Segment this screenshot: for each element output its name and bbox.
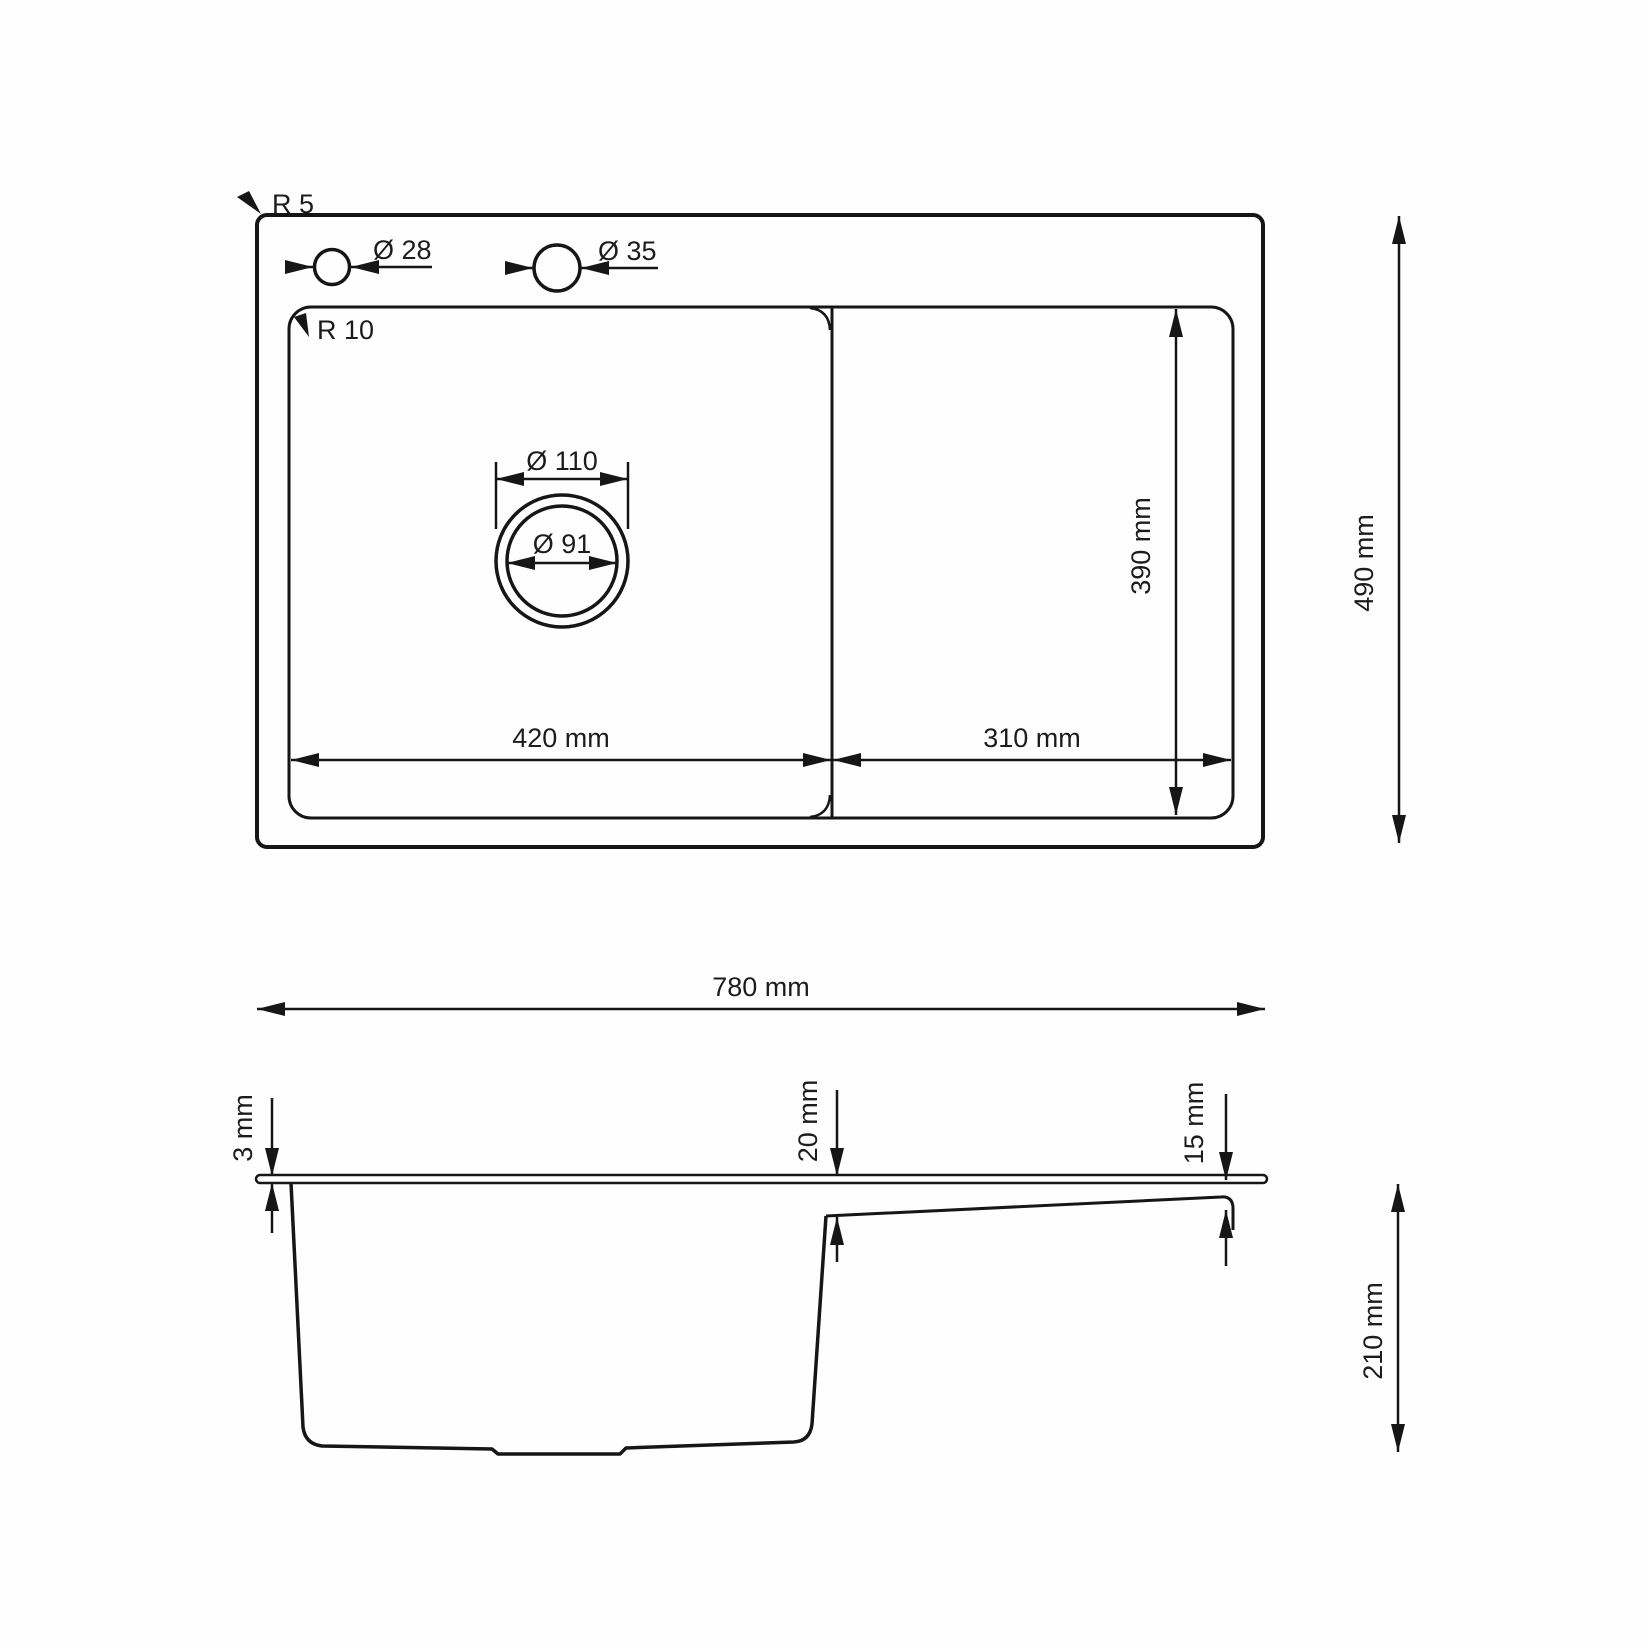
drain-inner-circle xyxy=(507,506,617,616)
faucet-hole-28 xyxy=(315,250,350,285)
dim-label-bowl-edge-drop: 20 mm xyxy=(793,1080,823,1163)
dim-label-hole-35: Ø 35 xyxy=(598,236,657,266)
leader-arrow-r5 xyxy=(237,191,261,214)
bowl-section-outline xyxy=(291,1183,826,1454)
dim-label-bowl-width: 420 mm xyxy=(512,723,610,753)
technical-drawing-canvas: Ø 28 Ø 35 R 5 R 10 Ø 110 xyxy=(0,0,1646,1646)
leader-arrow-r10 xyxy=(294,313,309,337)
dim-rim-thickness: 3 mm xyxy=(228,1094,272,1233)
dim-drain-outer: Ø 110 xyxy=(496,446,628,529)
dim-label-drainboard-width: 310 mm xyxy=(983,723,1081,753)
dim-bowl-edge-drop: 20 mm xyxy=(793,1080,837,1262)
dim-bowl-depth: 390 mm xyxy=(1126,309,1176,815)
faucet-hole-35 xyxy=(534,245,580,291)
top-view: Ø 28 Ø 35 R 5 R 10 Ø 110 xyxy=(237,189,1399,847)
sink-technical-drawing: Ø 28 Ø 35 R 5 R 10 Ø 110 xyxy=(0,0,1646,1646)
dim-label-overall-width: 780 mm xyxy=(712,972,810,1002)
dim-bowl-width: 420 mm xyxy=(291,723,831,760)
radius-inner-label: R 10 xyxy=(317,315,374,345)
dim-label-drainboard-edge-drop: 15 mm xyxy=(1179,1082,1209,1165)
dim-faucet-hole-35: Ø 35 xyxy=(506,236,658,268)
dim-label-rim-thickness: 3 mm xyxy=(228,1094,258,1162)
dim-overall-depth: 490 mm xyxy=(1349,216,1399,843)
radius-outer-callout: R 5 xyxy=(237,189,314,219)
radius-outer-label: R 5 xyxy=(272,189,314,219)
dim-drainboard-width: 310 mm xyxy=(833,723,1231,760)
dim-drain-inner: Ø 91 xyxy=(507,529,617,563)
outer-outline xyxy=(257,215,1263,847)
radius-inner-callout: R 10 xyxy=(294,313,374,345)
dim-overall-width: 780 mm xyxy=(257,972,1265,1009)
dim-label-drain-outer: Ø 110 xyxy=(526,446,598,476)
dim-bowl-height: 210 mm xyxy=(1358,1184,1398,1452)
drain-outer-circle xyxy=(496,495,628,627)
rim-profile xyxy=(256,1175,1267,1183)
inner-bowl-outline xyxy=(289,307,1233,818)
drainboard-section-outline xyxy=(826,1197,1233,1230)
divider-top-fillet xyxy=(810,308,830,330)
front-view: 3 mm 20 mm 15 mm 210 mm xyxy=(228,1080,1398,1454)
divider-bottom-fillet xyxy=(810,795,830,817)
dim-label-drain-inner: Ø 91 xyxy=(533,529,592,559)
dim-faucet-hole-28: Ø 28 xyxy=(286,235,432,267)
dim-label-hole-28: Ø 28 xyxy=(373,235,432,265)
dim-label-bowl-depth: 390 mm xyxy=(1126,497,1156,595)
dim-label-bowl-height: 210 mm xyxy=(1358,1282,1388,1380)
dim-label-overall-depth: 490 mm xyxy=(1349,514,1379,612)
